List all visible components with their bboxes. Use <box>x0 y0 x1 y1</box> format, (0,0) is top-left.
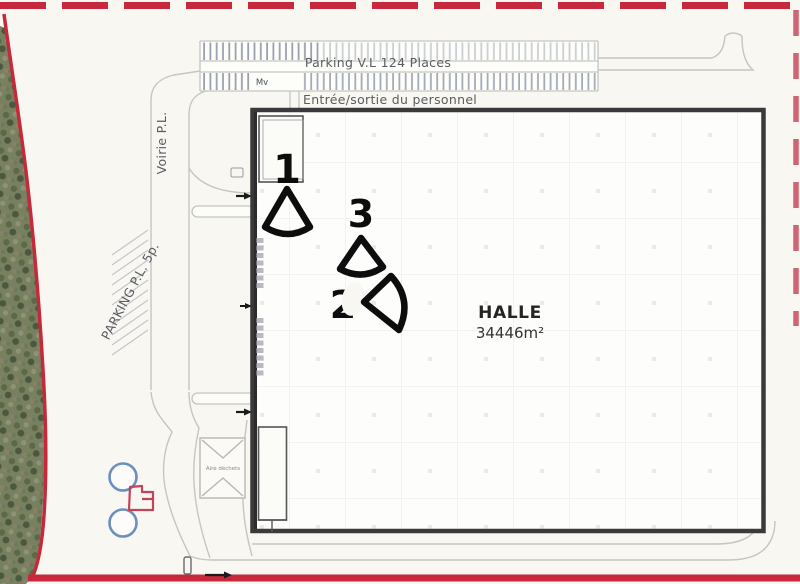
parking-vl-strip: Parking V.L 124 Places Mv <box>200 41 598 91</box>
hall-area-label: 34446m² <box>476 324 544 342</box>
marker-digit-3: 3 <box>348 192 374 236</box>
office-room-south <box>259 427 287 520</box>
site-plan: Parking V.L 124 Places Mv Entrée/sortie … <box>0 0 800 584</box>
parking-hatch-bottom-left <box>202 73 250 90</box>
parking-note-label: Mv <box>256 78 268 88</box>
hall-name-label: HALLE <box>478 303 542 323</box>
site-plan-drawing: Parking V.L 124 Places Mv Entrée/sortie … <box>0 0 800 584</box>
parking-hatch-bottom-right <box>300 73 596 90</box>
voirie-label: Voirie P.L. <box>154 112 169 175</box>
personnel-entrance: Entrée/sortie du personnel <box>290 91 477 109</box>
truck-south <box>192 393 255 404</box>
truck-north <box>192 206 255 217</box>
hydrant-circle-south <box>110 510 137 537</box>
entrance-label: Entrée/sortie du personnel <box>303 92 477 107</box>
waste-enclosure: Aire déchets <box>200 438 245 498</box>
parking-vl-label: Parking V.L 124 Places <box>305 55 451 70</box>
waste-area-label: Aire déchets <box>206 465 240 472</box>
